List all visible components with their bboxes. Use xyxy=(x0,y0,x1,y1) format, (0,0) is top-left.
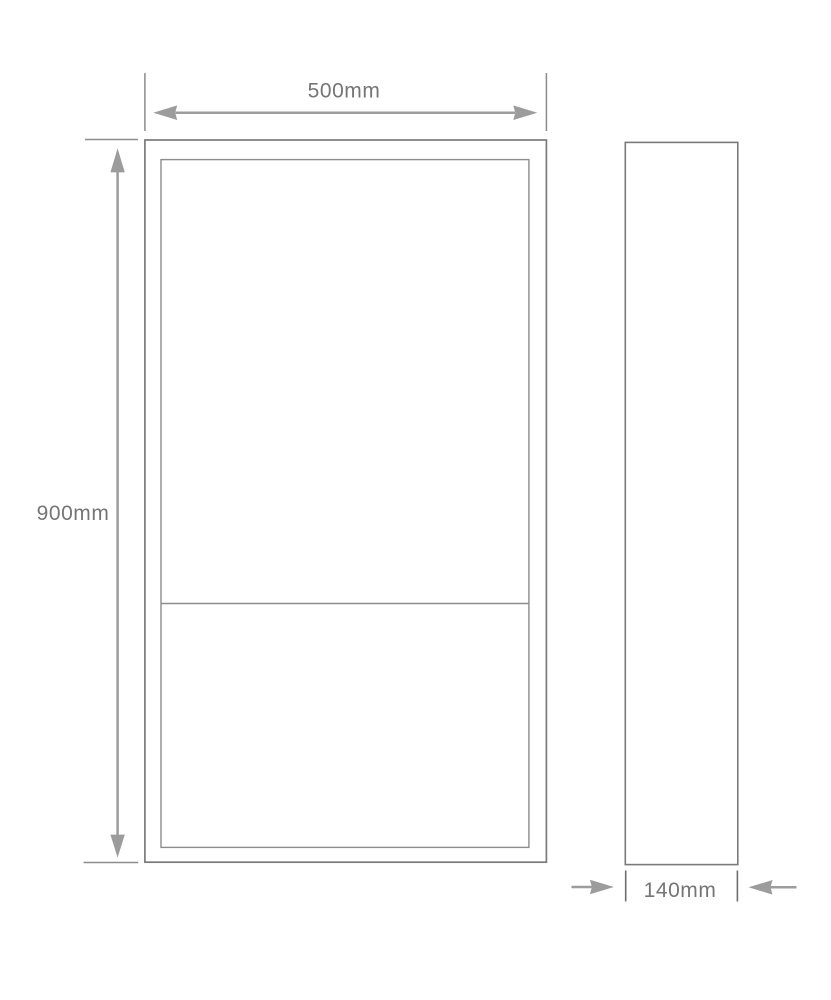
svg-text:500mm: 500mm xyxy=(308,79,381,102)
svg-text:900mm: 900mm xyxy=(37,502,110,525)
svg-text:140mm: 140mm xyxy=(644,879,717,902)
